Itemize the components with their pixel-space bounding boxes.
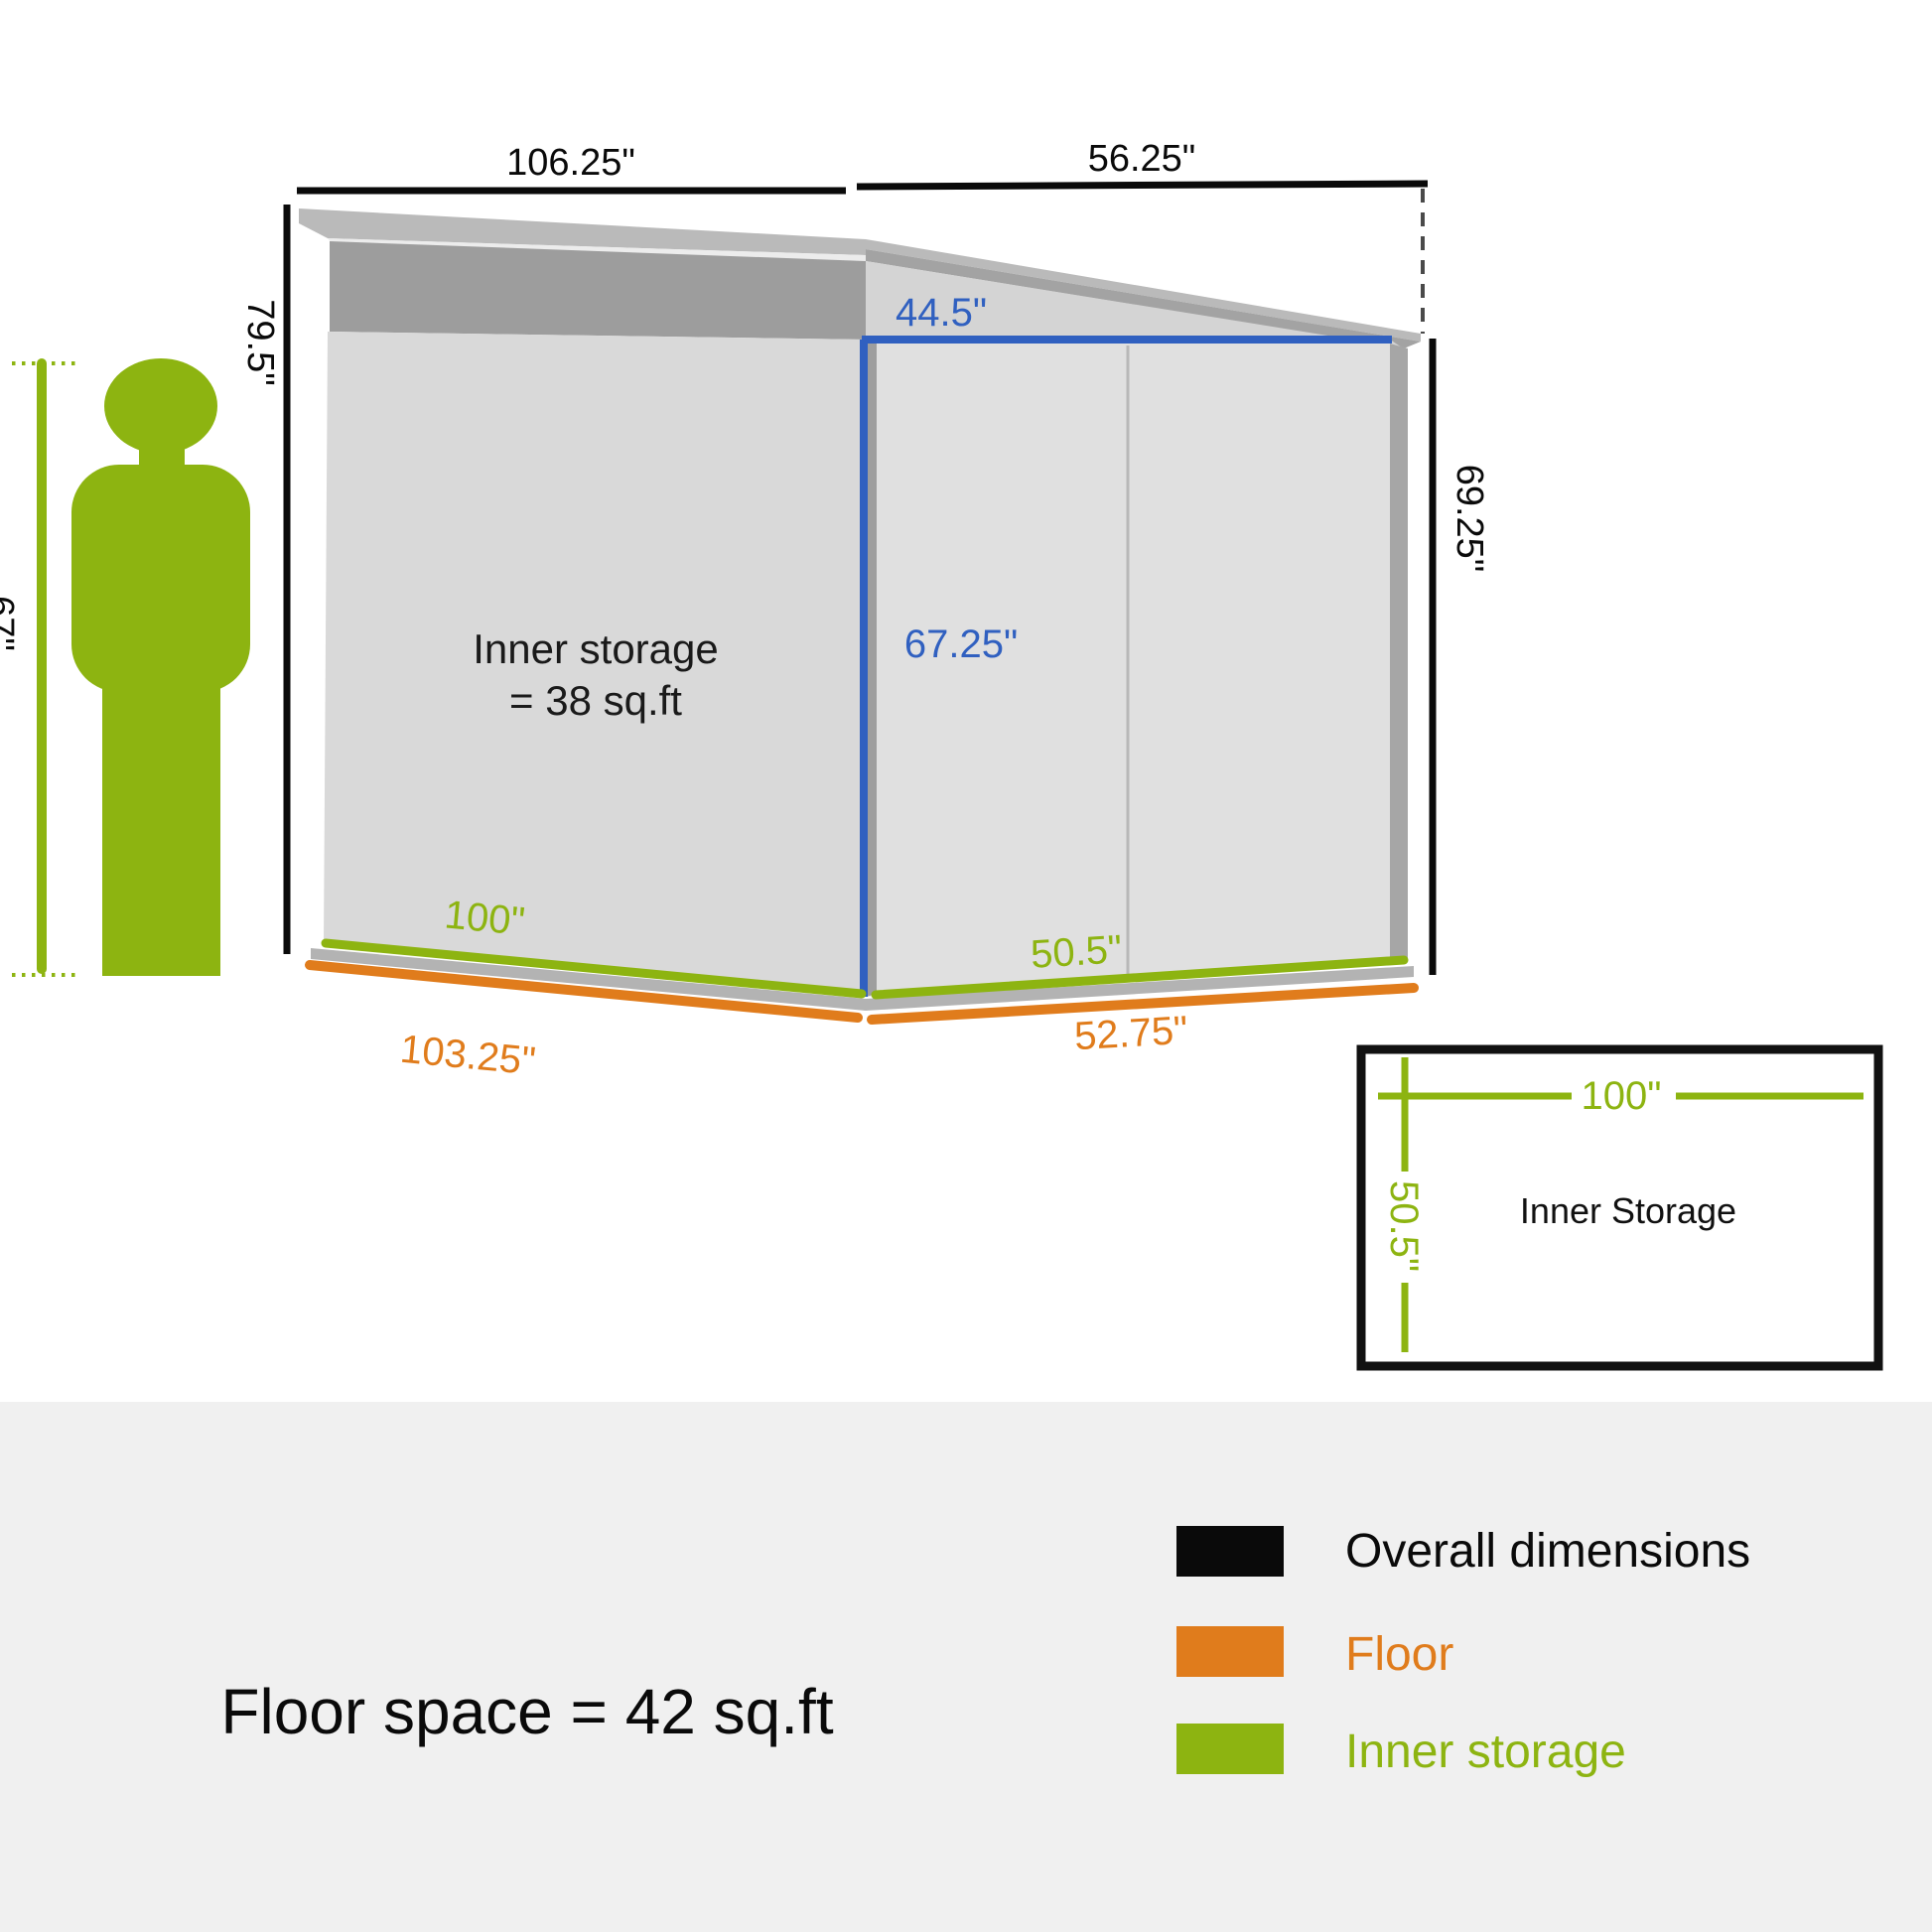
legend-label-overall: Overall dimensions bbox=[1345, 1525, 1750, 1578]
top-view-depth-label: 50.5" bbox=[1382, 1180, 1426, 1272]
dim-label-top-right: 56.25" bbox=[1088, 138, 1196, 180]
floor-right-label: 52.75" bbox=[1073, 1009, 1189, 1059]
legend-label-floor: Floor bbox=[1345, 1628, 1453, 1681]
dim-label-height-left: 79.5" bbox=[239, 299, 281, 385]
legend-label-inner: Inner storage bbox=[1345, 1725, 1626, 1778]
legend-swatch-inner bbox=[1176, 1724, 1284, 1774]
top-view-title: Inner Storage bbox=[1520, 1190, 1736, 1231]
inner-storage-note-line2: = 38 sq.ft bbox=[509, 677, 682, 724]
dim-line-top-right bbox=[857, 184, 1428, 187]
inner-left-label: 100" bbox=[443, 893, 527, 943]
person-head bbox=[104, 358, 217, 454]
legend-item-overall: Overall dimensions bbox=[1176, 1525, 1750, 1578]
legend-swatch-floor bbox=[1176, 1626, 1284, 1677]
floor-left-label: 103.25" bbox=[398, 1028, 537, 1084]
inner-storage-note-line1: Inner storage bbox=[473, 625, 719, 672]
diagram-canvas: 67" 106.25" 56.25" 79.5" 69.25" 44.5" 67… bbox=[0, 0, 1932, 1932]
floor-space-text: Floor space = 42 sq.ft bbox=[220, 1676, 833, 1747]
top-view-panel: 100" 50.5" Inner Storage bbox=[1361, 1049, 1878, 1366]
footer-band: Floor space = 42 sq.ft Overall dimension… bbox=[0, 1402, 1932, 1932]
dim-label-height-right: 69.25" bbox=[1449, 465, 1490, 573]
footer-background bbox=[0, 1402, 1932, 1932]
door-height-label: 67.25" bbox=[904, 622, 1018, 666]
legend-swatch-overall bbox=[1176, 1526, 1284, 1577]
right-corner-trim bbox=[1390, 344, 1408, 963]
person-height-label: 67" bbox=[0, 596, 21, 651]
legend-item-inner: Inner storage bbox=[1176, 1724, 1626, 1778]
dim-label-top-left: 106.25" bbox=[506, 142, 635, 184]
top-view-width-label: 100" bbox=[1582, 1074, 1662, 1118]
inner-right-label: 50.5" bbox=[1030, 927, 1124, 977]
person-figure bbox=[71, 358, 250, 976]
door-width-label: 44.5" bbox=[896, 291, 987, 335]
person-legs bbox=[102, 655, 220, 976]
shed-dimension-diagram: 67" 106.25" 56.25" 79.5" 69.25" 44.5" 67… bbox=[0, 0, 1932, 1932]
person-height-dimension: 67" bbox=[0, 363, 79, 975]
